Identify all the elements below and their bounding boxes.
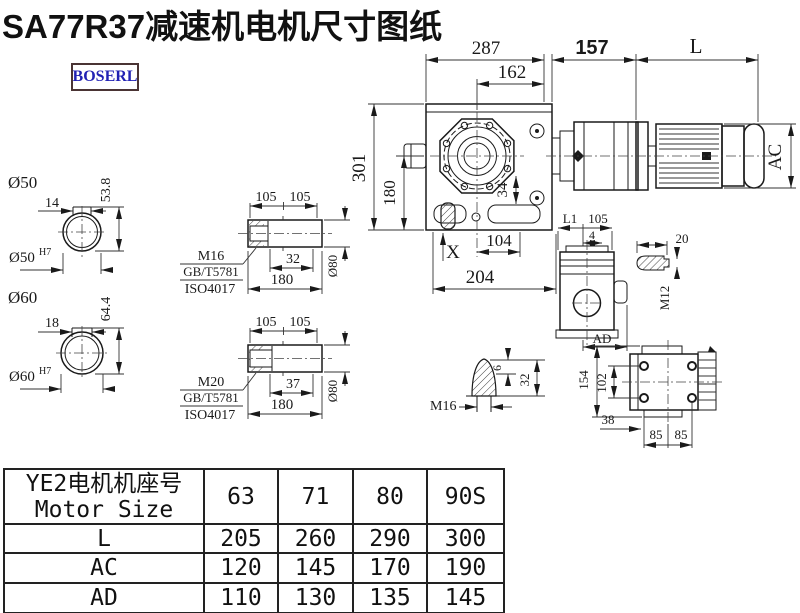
technical-drawing: 287 162 157 L 301 180 34 X 104 204 — [0, 0, 800, 465]
dim-AC: AC — [765, 144, 786, 170]
dim-38: 38 — [602, 412, 615, 427]
table-cell: 205 — [204, 524, 278, 553]
bore60-fit: Ø60 — [9, 369, 35, 385]
table-cell: 170 — [353, 553, 427, 583]
motor-size-header-en: Motor Size — [5, 497, 203, 523]
bore-section-60: Ø60 18 64.4 Ø60 H7 — [8, 288, 124, 393]
motor-size-header: YE2电机机座号 Motor Size — [4, 469, 204, 524]
table-row-L: L 205 260 290 300 — [4, 524, 504, 553]
dim-162: 162 — [498, 62, 527, 83]
row-label: AC — [4, 553, 204, 583]
dim-L1: L1 — [563, 211, 577, 226]
bore50-key-width: 14 — [45, 196, 59, 211]
gearbox-rear-view: 154 102 38 85 85 — [576, 340, 722, 448]
bore60-fit-sup: H7 — [39, 366, 51, 377]
row-label: AD — [4, 583, 204, 613]
size-col-3: 90S — [427, 469, 504, 524]
dim-180: 180 — [380, 180, 399, 206]
gearbox-side-view: L1 105 4 AD — [556, 211, 627, 351]
bore50-label: Ø50 — [8, 173, 37, 192]
dim-4: 4 — [589, 228, 595, 242]
bore60-label: Ø60 — [8, 288, 37, 307]
size-col-0: 63 — [204, 469, 278, 524]
table-cell: 145 — [278, 553, 353, 583]
dim-34: 34 — [495, 182, 511, 198]
dim-154: 154 — [576, 370, 591, 390]
plug-detail-m16: M16 6 32 — [430, 348, 545, 414]
dim-301: 301 — [349, 154, 370, 183]
dim-M12: M12 — [657, 286, 672, 311]
bore50-fit: Ø50 — [9, 250, 35, 266]
dim-85-b: 85 — [675, 427, 688, 442]
table-row-AD: AD 110 130 135 145 — [4, 583, 504, 613]
shaft1-std2: ISO4017 — [185, 282, 236, 297]
shaft2-std1: GB/T5781 — [183, 390, 239, 405]
motor-size-header-cn: YE2电机机座号 — [5, 471, 203, 497]
shaft1-thread: M16 — [198, 249, 224, 264]
gearbox-front-view — [404, 104, 552, 257]
size-col-1: 71 — [278, 469, 353, 524]
dim-20: 20 — [676, 231, 689, 246]
dim-157: 157 — [575, 37, 608, 59]
shaft2-dia: Ø80 — [325, 380, 340, 402]
shaft1-depth: 32 — [286, 252, 300, 267]
dim-204: 204 — [466, 267, 495, 288]
bore50-fit-sup: H7 — [39, 247, 51, 258]
dim-M16-plug: M16 — [430, 399, 456, 414]
table-cell: 290 — [353, 524, 427, 553]
row-label: L — [4, 524, 204, 553]
bore60-height: 64.4 — [99, 297, 114, 322]
table-cell: 135 — [353, 583, 427, 613]
dim-32-plug: 32 — [517, 374, 532, 387]
table-cell: 300 — [427, 524, 504, 553]
table-cell: 260 — [278, 524, 353, 553]
shaft1-length: 180 — [271, 272, 294, 288]
bore50-height: 53.8 — [99, 178, 114, 203]
bolt-detail-m12: 20 M12 — [637, 231, 689, 310]
table-cell: 120 — [204, 553, 278, 583]
shaft1-dim-105a: 105 — [256, 190, 277, 205]
size-col-2: 80 — [353, 469, 427, 524]
shaft2-dim-105a: 105 — [256, 315, 277, 330]
front-view-dimensions: 287 162 157 L 301 180 34 X 104 204 — [349, 34, 796, 294]
dim-102: 102 — [594, 373, 609, 393]
bore60-key-width: 18 — [45, 316, 59, 331]
drawing-sheet: SA77R37减速机电机尺寸图纸 BOSERL — [0, 0, 800, 613]
dim-6: 6 — [490, 365, 504, 371]
shaft1-dia: Ø80 — [325, 255, 340, 277]
shaft2-depth: 37 — [286, 377, 300, 392]
shaft2-thread: M20 — [198, 375, 224, 390]
hollow-shaft-detail-2: 105 105 37 180 Ø80 M20 GB/T5781 — [180, 315, 350, 423]
dim-L: L — [690, 34, 703, 58]
hollow-shaft-detail-1: 105 105 32 180 Ø80 M16 GB/T5781 — [180, 190, 350, 297]
table-row-AC: AC 120 145 170 190 — [4, 553, 504, 583]
dim-287: 287 — [472, 38, 501, 59]
dim-85-a: 85 — [650, 427, 663, 442]
label-X: X — [446, 242, 460, 263]
bore-section-50: Ø50 14 53.8 Ø50 H7 — [8, 173, 124, 274]
dim-104: 104 — [486, 231, 512, 250]
motor-size-table: YE2电机机座号 Motor Size 63 71 80 90S L 205 2… — [3, 468, 505, 613]
motor-front-view — [546, 122, 776, 190]
dim-105-side: 105 — [588, 211, 608, 226]
shaft2-std2: ISO4017 — [185, 408, 236, 423]
shaft2-dim-105b: 105 — [290, 315, 311, 330]
table-cell: 145 — [427, 583, 504, 613]
shaft2-length: 180 — [271, 397, 294, 413]
shaft1-dim-105b: 105 — [290, 190, 311, 205]
table-cell: 190 — [427, 553, 504, 583]
dim-AD: AD — [593, 331, 612, 346]
table-cell: 130 — [278, 583, 353, 613]
table-cell: 110 — [204, 583, 278, 613]
shaft1-std1: GB/T5781 — [183, 264, 239, 279]
